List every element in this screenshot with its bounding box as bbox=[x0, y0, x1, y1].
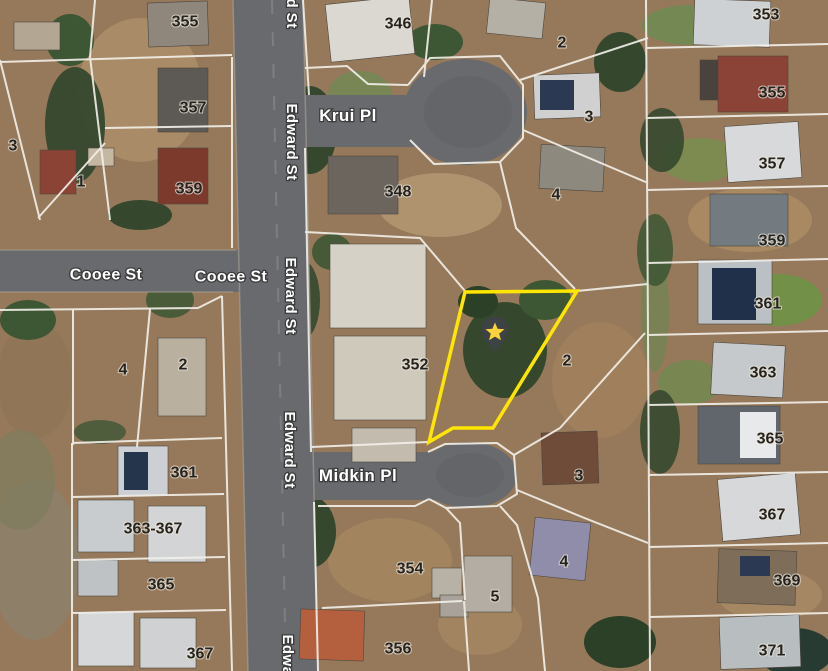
street-label-krui-pl-1: Krui Pl bbox=[319, 106, 377, 125]
lot-label-1-3: 1 bbox=[77, 174, 86, 191]
lot-label-371-32: 371 bbox=[759, 643, 786, 660]
street-label-edward-st-5: Edward St bbox=[282, 258, 299, 335]
street-label-cooee-st-3: Cooee St bbox=[70, 267, 143, 284]
lot-label-367-30: 367 bbox=[759, 507, 786, 524]
lot-label-357-25: 357 bbox=[759, 156, 786, 173]
lot-label-2-12: 2 bbox=[558, 35, 567, 52]
lot-label-367-10: 367 bbox=[187, 646, 214, 663]
lot-label-359-4: 359 bbox=[176, 181, 203, 198]
lot-label-4-14: 4 bbox=[552, 187, 561, 204]
lot-label-359-26: 359 bbox=[759, 233, 786, 250]
lot-label-4-19: 4 bbox=[560, 554, 569, 571]
lot-label-348-15: 348 bbox=[385, 184, 412, 201]
lot-label-355-24: 355 bbox=[759, 85, 786, 102]
lot-label-357-1: 357 bbox=[180, 100, 207, 117]
satellite-map-view[interactable]: 3553573135942361363-36736536734623434835… bbox=[0, 0, 828, 671]
lot-label-356-22: 356 bbox=[385, 641, 412, 658]
street-label-edward-st-0: Edward St bbox=[283, 0, 300, 28]
lot-label-365-29: 365 bbox=[757, 431, 784, 448]
lot-label-3-18: 3 bbox=[575, 468, 584, 485]
lot-label-3-13: 3 bbox=[585, 109, 594, 126]
lot-label-363-367-8: 363-367 bbox=[124, 521, 183, 538]
lot-label-361-7: 361 bbox=[171, 465, 198, 482]
lot-label-3-2: 3 bbox=[9, 138, 18, 155]
lot-label-369-31: 369 bbox=[774, 573, 801, 590]
lot-label-346-11: 346 bbox=[385, 16, 412, 33]
street-label-edward-st-8: Edward St bbox=[279, 635, 296, 671]
street-label-cooee-st-4: Cooee St bbox=[195, 269, 268, 286]
lot-label-365-9: 365 bbox=[148, 577, 175, 594]
street-label-edward-st-6: Edward St bbox=[281, 412, 298, 489]
lot-label-2-6: 2 bbox=[179, 357, 188, 374]
lot-label-5-21: 5 bbox=[491, 589, 500, 606]
lot-label-363-28: 363 bbox=[750, 365, 777, 382]
lot-label-4-5: 4 bbox=[119, 362, 128, 379]
street-label-edward-st-2: Edward St bbox=[283, 104, 300, 181]
lot-label-352-16: 352 bbox=[402, 357, 429, 374]
street-label-midkin-pl-7: Midkin Pl bbox=[319, 466, 397, 485]
lot-label-2-17: 2 bbox=[563, 353, 572, 370]
lot-label-354-20: 354 bbox=[397, 561, 424, 578]
lot-label-355-0: 355 bbox=[172, 14, 199, 31]
lot-label-353-23: 353 bbox=[753, 7, 780, 24]
lot-label-361-27: 361 bbox=[755, 296, 782, 313]
